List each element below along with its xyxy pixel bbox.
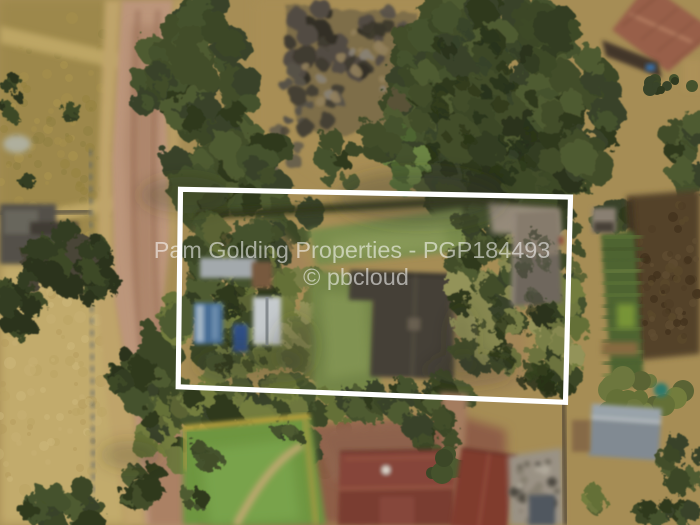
svg-text:Pam Golding Properties - PGP18: Pam Golding Properties - PGP184493 bbox=[154, 237, 551, 263]
svg-text:© pbcloud: © pbcloud bbox=[303, 264, 409, 290]
